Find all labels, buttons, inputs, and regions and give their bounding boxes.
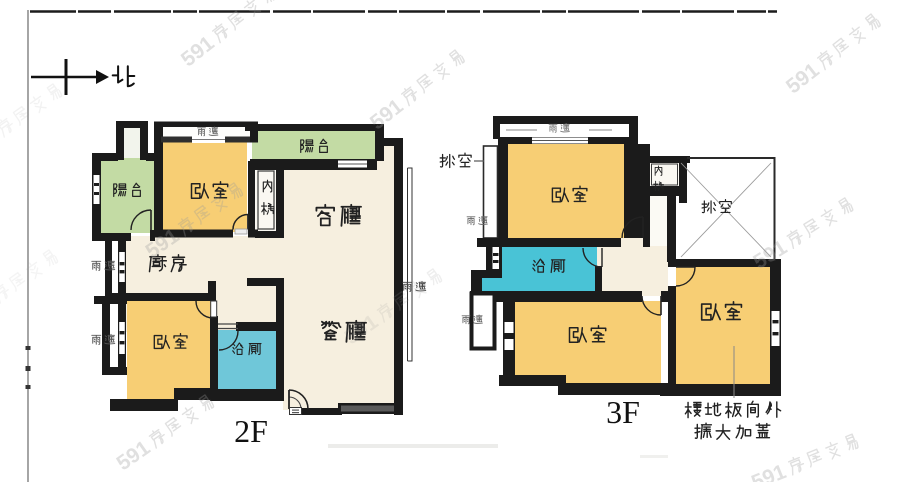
svg-text:591: 591: [113, 436, 155, 475]
svg-text:591: 591: [748, 460, 789, 482]
svg-text:591: 591: [782, 59, 824, 99]
svg-text:591: 591: [177, 32, 219, 72]
svg-text:2F: 2F: [234, 413, 268, 449]
svg-text:3F: 3F: [606, 394, 640, 430]
